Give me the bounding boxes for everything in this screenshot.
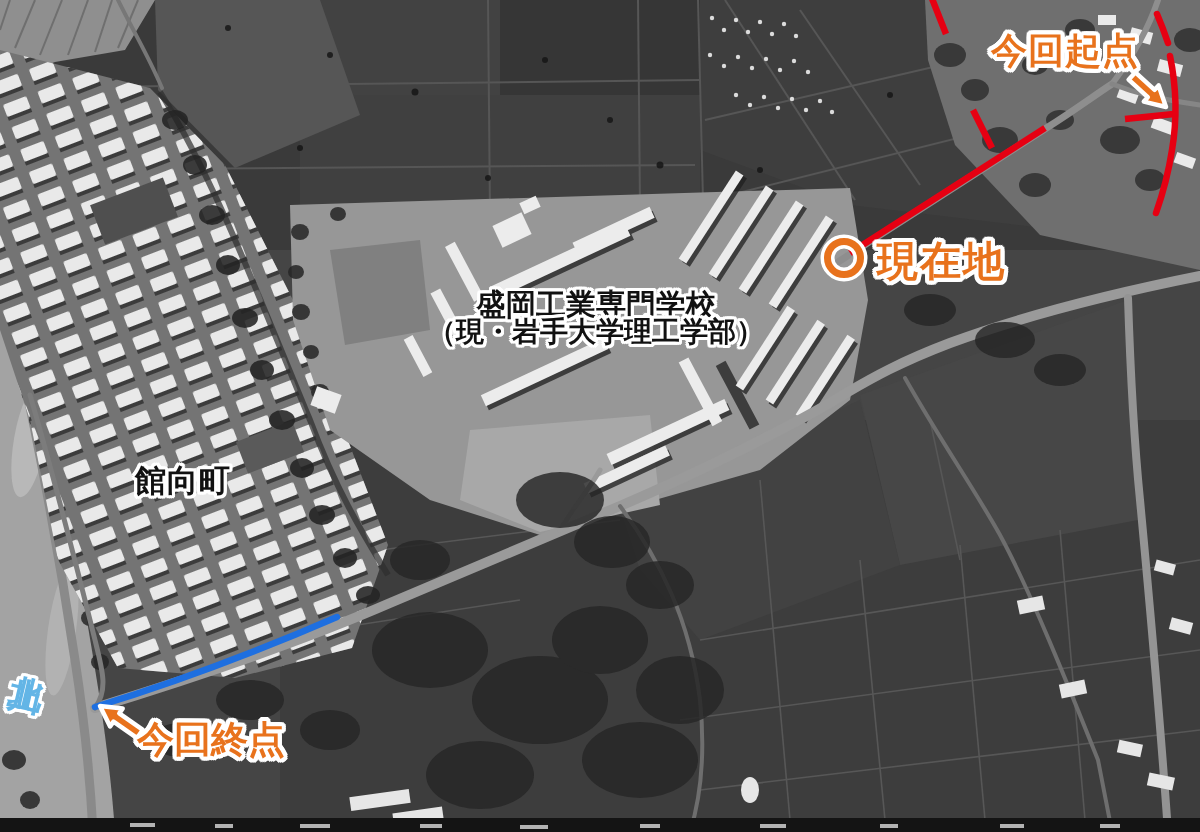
- current-location-label: 現在地: [877, 241, 1006, 282]
- route-red-branch-line: [1125, 114, 1174, 119]
- start-point-arrow: [1129, 72, 1166, 107]
- town-label: 館向町: [135, 465, 231, 496]
- route-red-dashes: [931, 0, 992, 148]
- route-red-main-line: [850, 128, 1045, 253]
- end-point-label: 今回終点: [137, 721, 285, 758]
- route-overlay: [0, 0, 1200, 832]
- school-label: 盛岡工業専門学校 （現・岩手大学理工学部）: [370, 290, 822, 346]
- start-point-label: 今回起点: [991, 33, 1139, 69]
- route-blue-line: [95, 617, 337, 707]
- current-location-marker: [828, 242, 861, 275]
- school-label-line2: （現・岩手大学理工学部）: [370, 318, 822, 346]
- annotated-aerial-map: 今回起点 現在地 盛岡工業専門学校 （現・岩手大学理工学部） 館向町 北上川 今…: [0, 0, 1200, 832]
